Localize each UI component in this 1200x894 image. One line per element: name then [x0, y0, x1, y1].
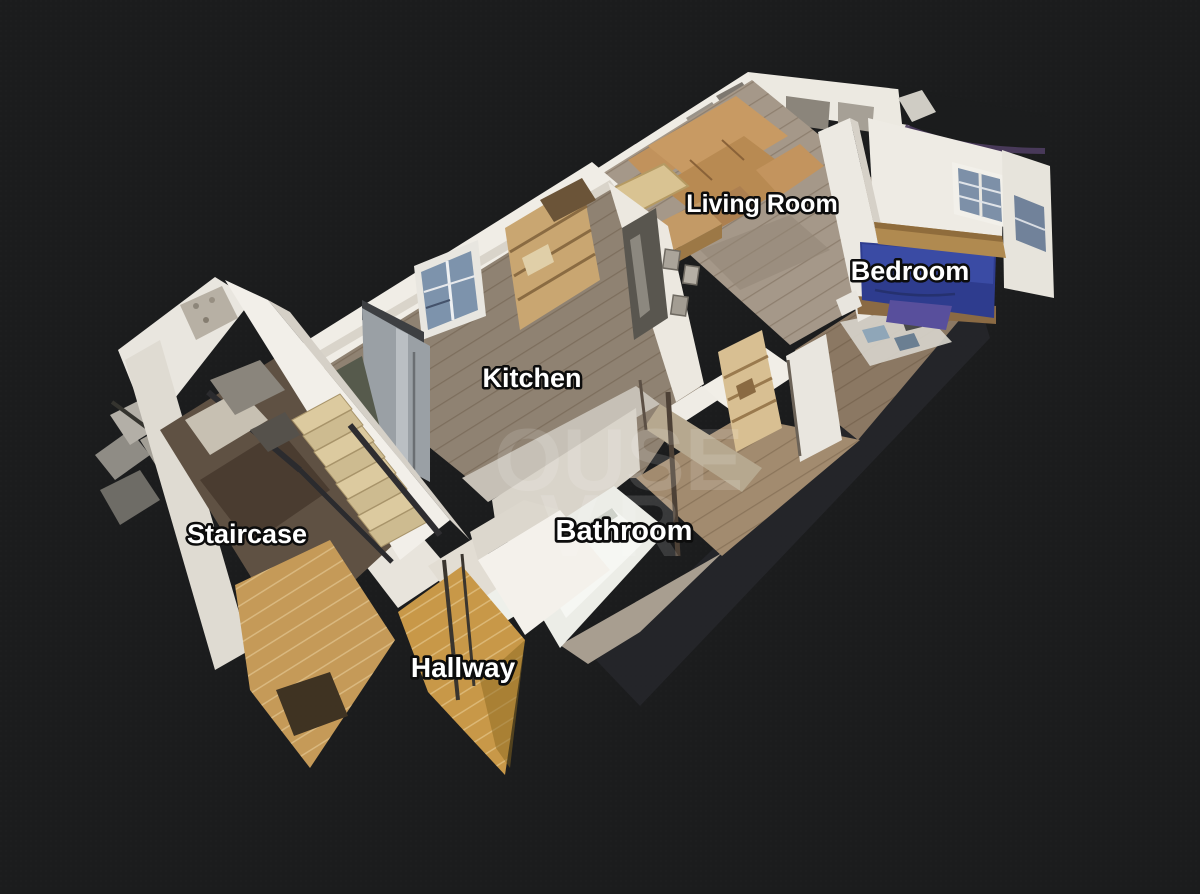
- label-bedroom: Bedroom: [851, 256, 970, 286]
- dollhouse-3d-view[interactable]: OUSE VR Living Room Bedroom Kitchen Bath…: [0, 0, 1200, 894]
- label-living-room: Living Room: [686, 190, 837, 218]
- stone-speckle: [193, 303, 199, 309]
- label-staircase: Staircase: [187, 519, 307, 549]
- stone-speckle: [209, 297, 215, 303]
- stone-speckle: [203, 317, 209, 323]
- label-kitchen: Kitchen: [482, 363, 581, 393]
- label-bathroom: Bathroom: [556, 515, 693, 547]
- window-mullion: [980, 173, 981, 216]
- label-hallway: Hallway: [411, 652, 516, 683]
- fridge-highlight: [396, 328, 408, 468]
- wall-picture: [671, 295, 688, 316]
- wall-picture: [683, 265, 699, 285]
- wall-picture: [663, 249, 680, 270]
- dollhouse-canvas[interactable]: OUSE VR Living Room Bedroom Kitchen Bath…: [0, 0, 1200, 894]
